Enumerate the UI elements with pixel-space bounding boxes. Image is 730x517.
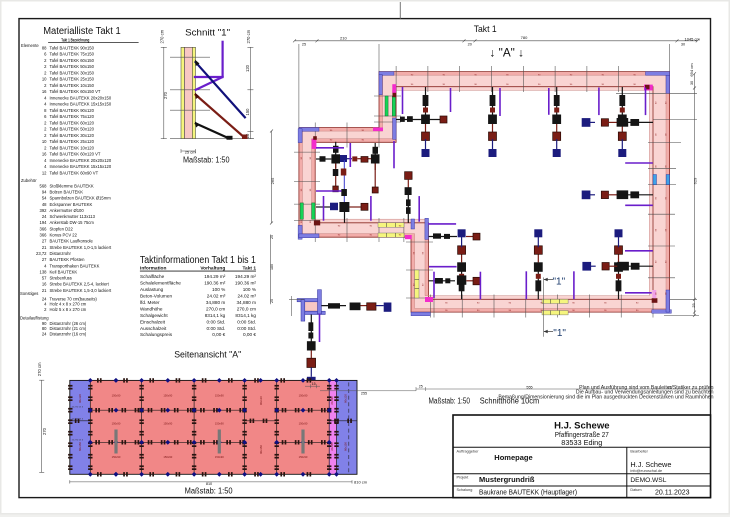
svg-text:16: 16 (42, 152, 47, 157)
svg-text:Materialliste Takt 1: Materialliste Takt 1 (43, 26, 121, 37)
svg-text:0,00 €: 0,00 € (212, 332, 225, 337)
svg-text:150x90: 150x90 (299, 455, 308, 459)
svg-text:lfd. Meter: lfd. Meter (140, 300, 160, 305)
svg-text:150x90: 150x90 (299, 422, 308, 426)
svg-text:Datum: Datum (630, 488, 641, 492)
svg-text:138: 138 (40, 269, 48, 274)
svg-text:Schalgewicht: Schalgewicht (140, 313, 168, 318)
svg-text:Einschalzeit: Einschalzeit (140, 319, 166, 324)
svg-text:Schalfläche: Schalfläche (140, 274, 165, 279)
svg-text:Tafel BAUTEKK 25x120: Tafel BAUTEKK 25x120 (50, 139, 95, 144)
svg-text:Tafel BAUTEKK 50x150: Tafel BAUTEKK 50x150 (50, 64, 95, 69)
svg-text:Ausschalzeit: Ausschalzeit (140, 326, 167, 331)
svg-text:180: 180 (270, 264, 274, 270)
svg-text:20.11.2023: 20.11.2023 (655, 487, 690, 496)
svg-text:Spannbolzen BAUTEKK Ø15mm: Spannbolzen BAUTEKK Ø15mm (50, 196, 112, 201)
svg-text:34,880 m: 34,880 m (206, 300, 226, 305)
svg-text:694 cm: 694 cm (689, 63, 694, 77)
svg-text:54: 54 (42, 196, 47, 201)
svg-text:150x90: 150x90 (215, 393, 224, 397)
svg-text:Holz 5 x 8 x 270 cm: Holz 5 x 8 x 270 cm (50, 307, 87, 312)
svg-text:Maßstab: 1:50: Maßstab: 1:50 (183, 155, 230, 164)
svg-text:24: 24 (42, 296, 47, 301)
svg-text:Tafel BAUTEKK 90x150: Tafel BAUTEKK 90x150 (50, 45, 95, 50)
svg-text:DEMO.WSL: DEMO.WSL (630, 477, 666, 484)
svg-text:Homepage: Homepage (494, 453, 532, 462)
svg-text:270,0 cm: 270,0 cm (237, 306, 256, 311)
svg-text:Strebe BAUTEKK 1,5-3,0 lackier: Strebe BAUTEKK 1,5-3,0 lackiert (50, 288, 113, 293)
svg-text:0:00 Std.: 0:00 Std. (207, 326, 226, 331)
svg-text:Takt 1: Takt 1 (242, 265, 256, 271)
svg-text:Tafel BAUTEKK 30x150: Tafel BAUTEKK 30x150 (50, 70, 95, 75)
svg-text:21: 21 (42, 245, 47, 250)
svg-text:Tafel BAUTEKK 75x120: Tafel BAUTEKK 75x120 (50, 114, 95, 119)
svg-text:555: 555 (526, 385, 532, 389)
svg-text:150x90: 150x90 (163, 422, 172, 426)
svg-text:Mustergrundriß: Mustergrundriß (479, 475, 535, 484)
svg-text:90x120: 90x120 (259, 396, 263, 405)
svg-text:Tafel BAUTEKK 90x120: Tafel BAUTEKK 90x120 (50, 108, 95, 113)
svg-text:34,880 m: 34,880 m (236, 300, 256, 305)
svg-text:8314,1 kg: 8314,1 kg (205, 313, 226, 318)
svg-text:Schalelementfläche: Schalelementfläche (140, 281, 181, 286)
svg-text:Wandhöhe: Wandhöhe (140, 306, 163, 311)
svg-text:Takt 1: Takt 1 (474, 24, 497, 35)
svg-text:194.29 m²: 194.29 m² (235, 274, 257, 279)
svg-text:Strebe BAUTEKK 1,0-1,5 lackier: Strebe BAUTEKK 1,0-1,5 lackiert (50, 245, 113, 250)
svg-text:90x150: 90x150 (259, 445, 263, 454)
svg-text:88: 88 (42, 45, 47, 50)
svg-text:Ankerstab DW-15 75cm: Ankerstab DW-15 75cm (50, 220, 95, 225)
svg-text:150: 150 (245, 108, 250, 116)
svg-text:15: 15 (312, 382, 316, 386)
svg-text:Strebe BAUTEKK 2,5-4, lackiert: Strebe BAUTEKK 2,5-4, lackiert (50, 282, 110, 287)
svg-text:"1": "1" (553, 277, 566, 288)
svg-text:Ankermutter Ø100: Ankermutter Ø100 (50, 208, 85, 213)
svg-text:Holz 4 x 8 x 270 cm: Holz 4 x 8 x 270 cm (50, 302, 87, 307)
svg-text:Information: Information (140, 265, 166, 271)
svg-text:Distanzrohr (16 cm): Distanzrohr (16 cm) (50, 331, 87, 336)
svg-text:Bemaßung/Dimensionierung sind: Bemaßung/Dimensionierung sind die im Pla… (498, 394, 713, 400)
svg-text:270 cm: 270 cm (246, 29, 251, 43)
svg-text:15 270 15 5: 15 270 15 5 (72, 440, 84, 442)
svg-text:150x90: 150x90 (112, 422, 121, 426)
svg-text:150x90: 150x90 (112, 393, 121, 397)
svg-text:12: 12 (42, 170, 47, 175)
svg-text:Distanzrohr (21 cm): Distanzrohr (21 cm) (50, 326, 87, 331)
svg-text:568: 568 (40, 183, 48, 188)
svg-text:BAUTEKK Pfosten: BAUTEKK Pfosten (50, 257, 86, 262)
svg-text:Schwenkmutter 113x113: Schwenkmutter 113x113 (50, 214, 96, 219)
svg-text:Schnitt "1": Schnitt "1" (185, 27, 230, 38)
svg-text:Schalung: Schalung (457, 488, 473, 492)
svg-text:↓ "A" ↓: ↓ "A" ↓ (490, 48, 525, 60)
svg-text:25: 25 (302, 42, 306, 46)
svg-text:27: 27 (42, 257, 47, 262)
svg-text:H.J. Schewe: H.J. Schewe (630, 460, 671, 469)
svg-text:20x120: 20x120 (331, 396, 334, 405)
svg-text:Tafel BAUTEKK 60x150: Tafel BAUTEKK 60x150 (50, 58, 95, 63)
svg-text:"1": "1" (553, 328, 566, 339)
svg-text:255: 255 (361, 392, 367, 396)
svg-text:Strebenfuss: Strebenfuss (50, 276, 72, 281)
svg-text:25: 25 (270, 235, 274, 239)
svg-text:Zubehör: Zubehör (21, 178, 37, 183)
svg-text:Auslastung: Auslastung (140, 287, 164, 292)
svg-text:BAUTEKK Laufkonsole: BAUTEKK Laufkonsole (50, 239, 94, 244)
svg-text:Tafel BAUTEKK 25x150: Tafel BAUTEKK 25x150 (50, 77, 95, 82)
svg-text:190.36 m²: 190.36 m² (235, 281, 257, 286)
svg-text:366: 366 (40, 226, 48, 231)
svg-text:190.36 m²: 190.36 m² (204, 281, 226, 286)
svg-text:83533 Eding: 83533 Eding (561, 438, 602, 447)
svg-text:8314,1 kg: 8314,1 kg (235, 313, 256, 318)
svg-text:25: 25 (692, 303, 696, 307)
svg-text:10: 10 (42, 77, 47, 82)
svg-text:210: 210 (340, 35, 347, 40)
svg-text:270: 270 (42, 427, 47, 435)
svg-text:Tafel BAUTEKK 60x120 VT: Tafel BAUTEKK 60x120 VT (50, 152, 101, 157)
svg-text:270 cm: 270 cm (160, 29, 165, 43)
svg-text:270,0 cm: 270,0 cm (206, 306, 225, 311)
svg-text:Seitenansicht "A": Seitenansicht "A" (174, 350, 241, 361)
svg-text:27: 27 (42, 239, 47, 244)
svg-text:150x90: 150x90 (163, 393, 172, 397)
svg-text:23,72: 23,72 (36, 251, 47, 256)
svg-text:Tafel BAUTEKK 50x120: Tafel BAUTEKK 50x120 (50, 127, 95, 132)
svg-text:60x150: 60x150 (78, 442, 82, 451)
svg-text:Innenecke BAUTEKK 20x20x150: Innenecke BAUTEKK 20x20x150 (50, 95, 112, 100)
svg-text:150x90: 150x90 (215, 422, 224, 426)
svg-text:270 cm: 270 cm (37, 362, 42, 376)
svg-text:90x120: 90x120 (78, 394, 82, 403)
svg-text:629: 629 (693, 177, 698, 184)
svg-text:Konus PCV 22: Konus PCV 22 (50, 233, 78, 238)
svg-text:Tafel BAUTEKK 30x120: Tafel BAUTEKK 30x120 (50, 133, 95, 138)
svg-text:Traverse 70 cm(bauseits): Traverse 70 cm(bauseits) (50, 296, 98, 301)
svg-text:Tafel BAUTEKK 10x120: Tafel BAUTEKK 10x120 (50, 145, 95, 150)
svg-text:150x90: 150x90 (215, 455, 224, 459)
svg-text:150x90: 150x90 (112, 455, 121, 459)
svg-text:0:00 Std.: 0:00 Std. (207, 319, 226, 324)
svg-text:60x150: 60x150 (344, 442, 348, 451)
svg-text:Bearbeiter: Bearbeiter (630, 450, 648, 454)
svg-text:info@euroschal.de: info@euroschal.de (630, 469, 662, 473)
svg-text:Projekt: Projekt (457, 476, 470, 480)
svg-text:25: 25 (270, 299, 274, 303)
svg-text:0,00 €: 0,00 € (243, 332, 256, 337)
svg-text:90: 90 (42, 321, 47, 326)
svg-text:810: 810 (206, 482, 212, 486)
svg-text:120: 120 (245, 64, 250, 72)
svg-text:1045 cm: 1045 cm (685, 36, 701, 41)
svg-text:15 270 15 5: 15 270 15 5 (72, 407, 84, 409)
svg-text:24.02 m³: 24.02 m³ (207, 294, 226, 299)
svg-text:24.02 m³: 24.02 m³ (238, 294, 257, 299)
svg-text:Eckspanner BAUTEKK: Eckspanner BAUTEKK (50, 202, 93, 207)
svg-text:24: 24 (42, 214, 47, 219)
svg-text:Distanzrohr (26 cm): Distanzrohr (26 cm) (50, 321, 87, 326)
svg-text:10: 10 (42, 139, 47, 144)
svg-text:392: 392 (40, 208, 48, 213)
svg-text:Tafel BAUTEKK 75x150: Tafel BAUTEKK 75x150 (50, 52, 95, 57)
svg-text:Taktinformationen Takt 1 bis: Taktinformationen Takt 1 bis 1 (140, 255, 256, 266)
svg-text:Stopfen D22: Stopfen D22 (50, 226, 74, 231)
svg-text:0:00 Std.: 0:00 Std. (237, 326, 256, 331)
svg-text:60x120: 60x120 (344, 394, 348, 403)
svg-text:150x90: 150x90 (299, 393, 308, 397)
svg-text:Stoßklemme BAUTEKK: Stoßklemme BAUTEKK (50, 183, 94, 188)
svg-text:366: 366 (40, 233, 48, 238)
svg-text:21: 21 (42, 288, 47, 293)
svg-text:20: 20 (468, 42, 472, 46)
svg-text:Schalungspreis: Schalungspreis (140, 332, 173, 337)
svg-text:Sonstiges: Sonstiges (20, 291, 38, 296)
svg-text:780: 780 (521, 35, 528, 40)
svg-text:Tafel BAUTEKK 60x120: Tafel BAUTEKK 60x120 (50, 120, 95, 125)
svg-text:15 270 15 5: 15 270 15 5 (72, 419, 84, 421)
svg-text:Innenecke BAUTEKK 15x15x120: Innenecke BAUTEKK 15x15x120 (50, 164, 112, 169)
svg-text:16: 16 (42, 89, 47, 94)
svg-text:Tafel BAUTEKK 60x150 VT: Tafel BAUTEKK 60x150 VT (50, 89, 101, 94)
svg-text:20x150: 20x150 (331, 442, 334, 451)
svg-text:94: 94 (42, 190, 47, 195)
svg-text:194.29 m²: 194.29 m² (204, 274, 226, 279)
svg-text:Tafel BAUTEKK 60x90 VT: Tafel BAUTEKK 60x90 VT (50, 170, 99, 175)
svg-text:Takt 1 Bezeichnung: Takt 1 Bezeichnung (61, 38, 89, 43)
svg-text:25: 25 (419, 385, 423, 389)
svg-text:100 %: 100 % (243, 287, 256, 292)
svg-text:100 %: 100 % (212, 287, 225, 292)
svg-text:Elemente: Elemente (21, 43, 39, 48)
svg-text:80: 80 (42, 326, 47, 331)
svg-text:Maßstab: 1:50: Maßstab: 1:50 (429, 396, 471, 405)
svg-text:Beton-Volumen: Beton-Volumen (140, 294, 172, 299)
svg-text:810 cm: 810 cm (354, 479, 368, 484)
svg-text:30: 30 (681, 42, 685, 46)
svg-text:48: 48 (42, 202, 47, 207)
svg-text:Tafel BAUTEKK 10x150: Tafel BAUTEKK 10x150 (50, 83, 95, 88)
svg-text:Vorhaltung: Vorhaltung (200, 265, 225, 271)
svg-text:265: 265 (270, 177, 275, 184)
svg-text:Maßstab: 1:50: Maßstab: 1:50 (185, 487, 234, 496)
svg-text:Auftraggeber: Auftraggeber (457, 450, 480, 454)
svg-text:Transporthaken BAUTEKK: Transporthaken BAUTEKK (50, 263, 100, 268)
svg-text:Innenecke BAUTEKK 15x15x150: Innenecke BAUTEKK 15x15x150 (50, 102, 112, 107)
svg-text:24: 24 (42, 331, 47, 336)
svg-text:Innenecke BAUTEKK 20x20x120: Innenecke BAUTEKK 20x20x120 (50, 158, 112, 163)
svg-text:194: 194 (40, 220, 48, 225)
svg-text:Bolzen BAUTEKK: Bolzen BAUTEKK (50, 190, 84, 195)
svg-text:Baukrane BAUTEKK (Hauptlager): Baukrane BAUTEKK (Hauptlager) (479, 487, 577, 496)
svg-text:16: 16 (42, 282, 47, 287)
svg-text:25 cm: 25 cm (185, 150, 197, 155)
svg-text:Distanzrohr: Distanzrohr (50, 251, 72, 256)
svg-text:150x90: 150x90 (163, 455, 172, 459)
svg-text:Keil BAUTEKK: Keil BAUTEKK (50, 269, 78, 274)
svg-text:0:00 Std.: 0:00 Std. (237, 319, 256, 324)
svg-text:270: 270 (163, 91, 168, 99)
svg-text:30: 30 (690, 81, 694, 85)
svg-text:57: 57 (42, 276, 47, 281)
